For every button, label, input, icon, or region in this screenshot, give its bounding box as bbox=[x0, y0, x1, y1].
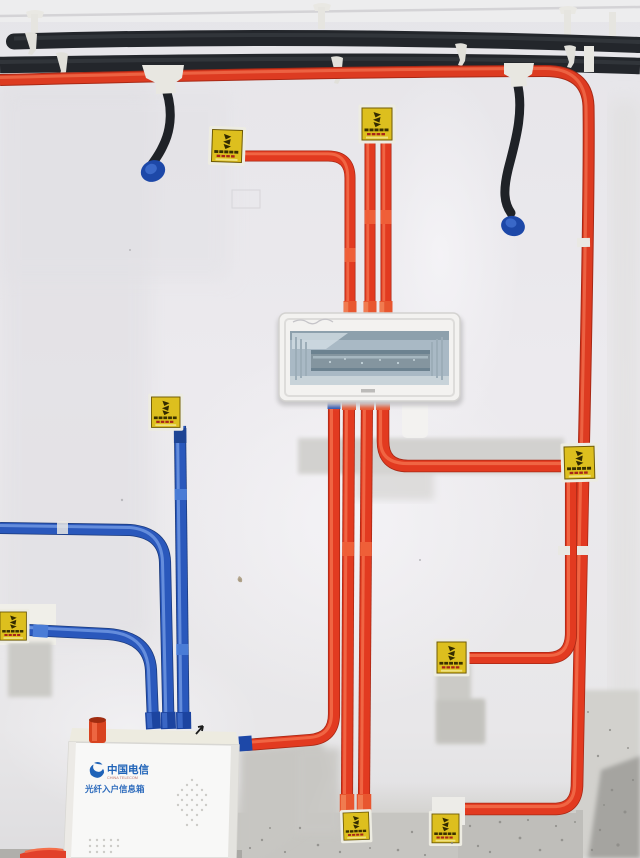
svg-text:中国电信: 中国电信 bbox=[107, 763, 149, 776]
svg-text:光纤入户信息箱: 光纤入户信息箱 bbox=[84, 784, 145, 794]
svg-text:CHINA TELECOM: CHINA TELECOM bbox=[107, 776, 138, 780]
